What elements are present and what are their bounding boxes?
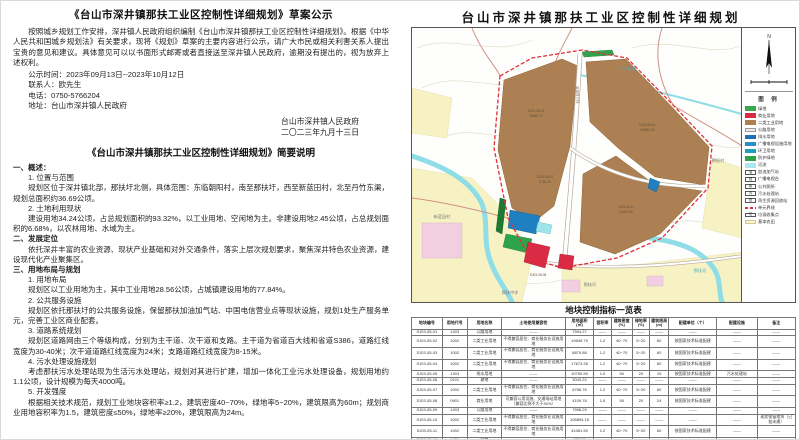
legend-swatch (745, 156, 756, 161)
village-label: 朝阳村 (712, 157, 725, 164)
summary-line: 1. 位置与范围 (13, 173, 389, 183)
legend-swatch (745, 135, 756, 140)
legend-glyph: 污 (749, 192, 753, 196)
table-row: SJ03-05-01 1403 公路用地 —— 7594.27 —— —— ——… (412, 329, 796, 336)
summary-line: 根据相关技术规范，规划工业地块容积率≥1.2，建筑密度40~70%，绿地率5~2… (13, 398, 389, 418)
parcel-code: SJ03-05-08 (530, 273, 547, 277)
contact-line: 联系人：欧先生 (13, 80, 389, 91)
summary-line: 一、概述： (13, 163, 389, 173)
parcel-code: SJ03-05-11 (618, 205, 634, 209)
legend-swatch: 油 (745, 170, 756, 175)
legend-label: 防护绿地 (758, 155, 775, 161)
legend-swatch (745, 163, 756, 168)
north-and-scale: N (745, 30, 793, 92)
summary-line: 2. 土地利用现状 (13, 204, 389, 214)
legend-item: 回 再生资源回收站 (745, 197, 793, 204)
legend-item: 商业用地 (745, 112, 793, 119)
legend-label: 绿地 (758, 106, 766, 112)
north-arrow-icon: N (745, 30, 793, 90)
legend-label: 环卫用地 (758, 148, 775, 154)
summary-line: 建设用地34.24公顷，占总规划面积的93.32%，以工业用地、空闲地为主。非建… (13, 214, 389, 234)
table-header-row: 地块编号 用地代号 用地名称 土地使用兼容性 用地面积 (㎡) 容积率 建筑密度… (412, 318, 796, 330)
legend-label: 广播电视台 (758, 176, 779, 182)
col-header: 配建设施 (717, 318, 757, 330)
legend-label: 再生资源回收站 (758, 198, 787, 204)
legend-item: 河流 (745, 162, 793, 169)
legend-title: 图 例 (745, 92, 793, 105)
signature-line: 台山市深井镇人民政府 (13, 116, 359, 127)
announcement-title: 《台山市深井镇那扶工业区控制性详细规划》草案公示 (13, 7, 389, 22)
map-legend: N 图 例 绿地 (741, 28, 795, 302)
col-header: 建筑限高 (m) (650, 318, 669, 330)
river-label: 那扶河 (694, 267, 707, 274)
summary-line: 2. 公共服务设施 (13, 296, 389, 306)
contact-block: 公示时间：2023年09月13日--2023年10月12日 联系人：欧先生 电话… (13, 70, 389, 112)
legend-swatch (745, 113, 756, 118)
legend-item: 环卫用地 (745, 148, 793, 155)
parcel-code: SJ03-05-02 (528, 109, 545, 113)
legend-swatch: 回 (745, 198, 756, 203)
legend-glyph: 回 (749, 199, 753, 203)
table-row: SJ03-05-08 0901 商业用地 可兼容公用设施、交通场站用地（兼容比例… (412, 396, 796, 408)
legend-item: 单元界线 (745, 204, 793, 211)
canal-label: 丹竹东渠 (619, 65, 637, 72)
town-label: 那扶圩 (584, 281, 597, 288)
table-row: SJ03-05-05 1303 排水用地 —— 10790.59 1.0 50 … (412, 371, 796, 378)
school-label: 那扶中学 (502, 289, 519, 296)
contact-line: 电话：0750-5766204 (13, 91, 389, 102)
announcement-paragraph: 按照城乡规划工作安排，深井镇人民政府组织编制《台山市深井镇那扶工业区控制性详细规… (13, 27, 389, 69)
summary-line: 三、用地布局与规划 (13, 265, 389, 275)
announcement-column: 《台山市深井镇那扶工业区控制性详细规划》草案公示 按照城乡规划工作安排，深井镇人… (1, 1, 401, 440)
parcel-area: 6756.76 (539, 180, 551, 184)
plan-map: SJ03-05-02 19549.79 SJ03-05-10 106894.15… (411, 27, 796, 303)
table-row: SJ03-05-10 1002 二类工业用地 不得兼容居住、商业服务业设施用地 … (412, 414, 796, 426)
legend-glyph: 垃 (749, 213, 753, 217)
legend-swatch: 视 (745, 177, 756, 182)
summary-line: 规划区位于深井镇北部，那扶圩北侧，具体范围：东临朝阳村，南至那扶圩，西至新蓝田村… (13, 183, 389, 203)
announcement-page: 《台山市深井镇那扶工业区控制性详细规划》草案公示 按照城乡规划工作安排，深井镇人… (0, 0, 800, 440)
legend-item: 油 加油加气站 (745, 169, 793, 176)
land-use-map: SJ03-05-02 19549.79 SJ03-05-10 106894.15… (412, 28, 742, 302)
contact-line: 公示时间：2023年09月13日--2023年10月12日 (13, 70, 389, 81)
table-row: SJ03-05-04 1002 二类工业用地 不得兼容居住、商业服务业设施用地 … (412, 359, 796, 371)
col-header: 地块编号 (412, 318, 443, 330)
legend-label: 河流 (758, 162, 766, 168)
legend-item: 绿地 (745, 105, 793, 112)
legend-item: 防护绿地 (745, 155, 793, 162)
col-header: 用地名称 (467, 318, 502, 330)
legend-item: 排水用地 (745, 133, 793, 140)
summary-line: 1. 用地布局 (13, 275, 389, 285)
legend-swatch (745, 128, 756, 133)
col-header: 用地面积 (㎡) (565, 318, 594, 330)
legend-label: 垃圾收集点 (758, 212, 779, 218)
legend-swatch: 厕 (745, 184, 756, 189)
legend-label: 二类工业用地 (758, 120, 783, 126)
plan-sheet: 台山市深井镇那扶工业区控制性详细规划 (401, 1, 800, 440)
legend-item: 厕 公共厕所 (745, 183, 793, 190)
parcel-code: SJ03-05-10 (639, 123, 656, 127)
parcel-area: 106894.15 (639, 128, 654, 132)
legend-label: 污水处理站 (758, 191, 779, 197)
col-header: 配建单位（个） (669, 318, 717, 330)
legend-glyph: 油 (749, 171, 753, 175)
legend-swatch (745, 149, 756, 154)
col-header: 用地代号 (442, 318, 467, 330)
summary-line: 4. 污水处理设施规划 (13, 357, 389, 367)
table-title: 地块控制指标一览表 (411, 303, 796, 317)
col-header: 容积率 (594, 318, 611, 330)
legend-item: 广播电视设施用地 (745, 140, 793, 147)
legend-label: 单元界线 (758, 205, 775, 211)
table-row: SJ03-05-09 1403 公路用地 —— 7598.29 —— —— ——… (412, 407, 796, 414)
col-header: 土地使用兼容性 (502, 318, 565, 330)
contact-line: 地址：台山市深井镇人民政府 (13, 101, 389, 112)
parcel-code: SJ03-05-07 (537, 175, 554, 179)
parcel-area: 41081.50 (619, 210, 633, 214)
signature-block: 台山市深井镇人民政府 二〇二三年九月十三日 (13, 116, 389, 138)
legend-swatch (745, 207, 756, 209)
legend-label: 排水用地 (758, 134, 775, 140)
legend-swatch (745, 120, 756, 125)
summary-line: 规划区依托那扶圩的公共服务设施，保留那扶加油加气站、中国电信营业点等现状设施，规… (13, 306, 389, 326)
legend-swatch (745, 220, 756, 225)
col-header: 建筑密度 (%) (611, 318, 632, 330)
table-row: SJ03-05-02 1002 二类工业用地 不得兼容居住、商业服务业设施用地 … (412, 336, 796, 348)
legend-label: 公共厕所 (758, 184, 775, 190)
legend-label: 基本农田 (758, 219, 775, 225)
legend-item: 污 污水处理站 (745, 190, 793, 197)
signature-line: 二〇二三年九月十三日 (13, 127, 359, 138)
col-header: 备注 (757, 318, 795, 330)
road-label: 省道百大线 (575, 86, 581, 104)
table-row: SJ03-05-07 1002 二类工业用地 不得兼容居住、商业服务业设施用地 … (412, 384, 796, 396)
summary-line: 规划区以工业用地为主，其中工业用地28.56公顷，占城镇建设用地的77.84%。 (13, 285, 389, 295)
table-row: SJ03-05-03 1002 二类工业用地 不得兼容居住、商业服务业设施用地 … (412, 347, 796, 359)
summary-title: 《台山市深井镇那扶工业区控制性详细规划》简要说明 (13, 145, 389, 159)
legend-swatch (745, 142, 756, 147)
legend-item: 公路用地 (745, 126, 793, 133)
legend-label: 公路用地 (758, 127, 775, 133)
legend-swatch: 污 (745, 191, 756, 196)
col-header: 绿地率 (%) (632, 318, 649, 330)
legend-item: 垃 垃圾收集点 (745, 211, 793, 218)
legend-glyph: 厕 (749, 185, 753, 189)
summary-line: 考虑那扶污水处理站现为生活污水处理站，规划对其进行扩建，增加一体化工业污水处理设… (13, 367, 389, 387)
svg-text:N: N (767, 34, 771, 40)
summary-sections: 一、概述： 1. 位置与范围 规划区位于深井镇北部，那扶圩北侧，具体范围：东临朝… (13, 163, 389, 418)
legend-item: 基本农田 (745, 219, 793, 226)
plan-title: 台山市深井镇那扶工业区控制性详细规划 (401, 1, 800, 26)
legend-item: 视 广播电视台 (745, 176, 793, 183)
legend-label: 商业用地 (758, 113, 775, 119)
table-row: SJ03-05-06 0101 耕地 —— 3043.22 —— —— —— —… (412, 377, 796, 384)
legend-label: 加油加气站 (758, 169, 779, 175)
legend-label: 广播电视设施用地 (758, 141, 792, 147)
indicator-table-section: 地块控制指标一览表 地块编号 用地代号 用地名称 土地使用兼容性 用地面积 (㎡… (411, 303, 796, 440)
summary-line: 规划区道路网由三个等级构成，分别为主干道、次干道和支路。主干道为省道百大线和省道… (13, 336, 389, 356)
parcel-area: 19549.79 (529, 114, 543, 118)
summary-line: 二、发展定位 (13, 234, 389, 244)
table-row: SJ03-05-11 1002 二类工业用地 不得兼容居住、商业服务业设施用地 … (412, 426, 796, 438)
village-label: 新蓝田村 (434, 213, 452, 220)
summary-line: 3. 道路系统规划 (13, 326, 389, 336)
legend-swatch (745, 106, 756, 111)
summary-line: 5. 开发强度 (13, 387, 389, 397)
legend-item: 二类工业用地 (745, 119, 793, 126)
legend-swatch: 垃 (745, 213, 756, 218)
summary-line: 依托深井丰富的农业资源、现状产业基础和对外交通条件，落实上层次规划要求，聚焦深井… (13, 245, 389, 265)
legend-glyph: 视 (749, 178, 753, 182)
plot-indicator-table: 地块编号 用地代号 用地名称 土地使用兼容性 用地面积 (㎡) 容积率 建筑密度… (411, 317, 796, 440)
